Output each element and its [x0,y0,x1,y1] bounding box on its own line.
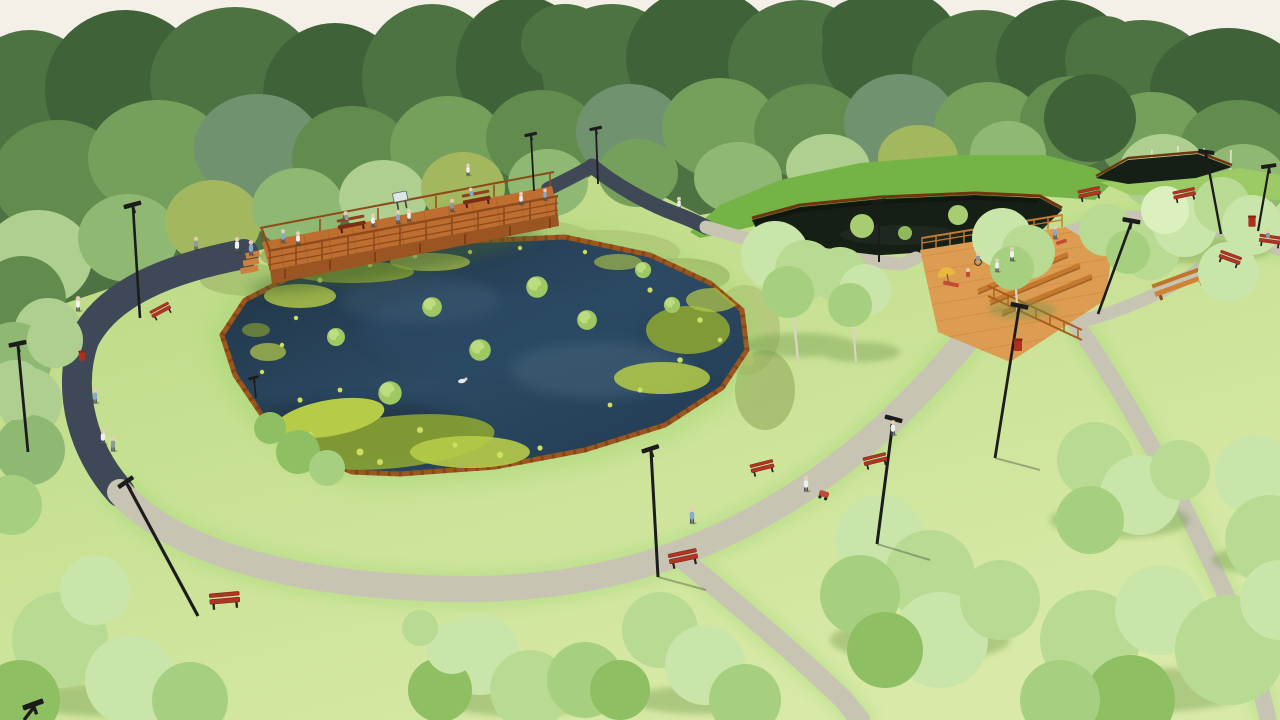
person-sitting [1266,229,1270,238]
pond-shrub [850,214,874,238]
litter-bin [78,351,85,361]
park-render: Aerial 3D architectural rendering of a l… [0,0,1280,720]
pond-shrub [948,205,968,225]
person-sitting [966,268,970,277]
park-render-stage: Aerial 3D architectural rendering of a l… [0,0,1280,720]
litter-bin [1013,339,1022,352]
litter-bin [1248,216,1256,227]
pond-shrub [898,226,912,240]
